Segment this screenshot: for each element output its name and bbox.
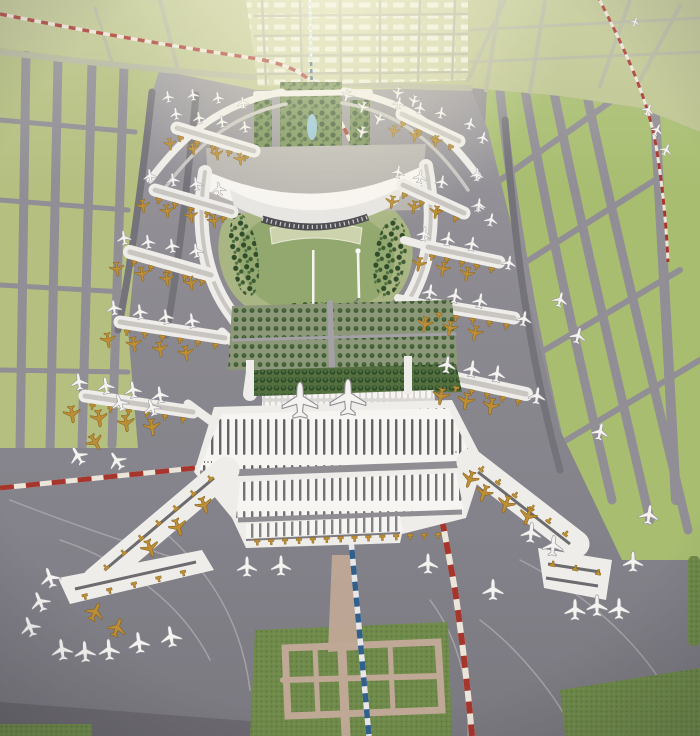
airport-model-photo-stage xyxy=(0,0,700,736)
lighting-effects xyxy=(0,0,700,736)
airport-model-photo xyxy=(0,0,700,736)
